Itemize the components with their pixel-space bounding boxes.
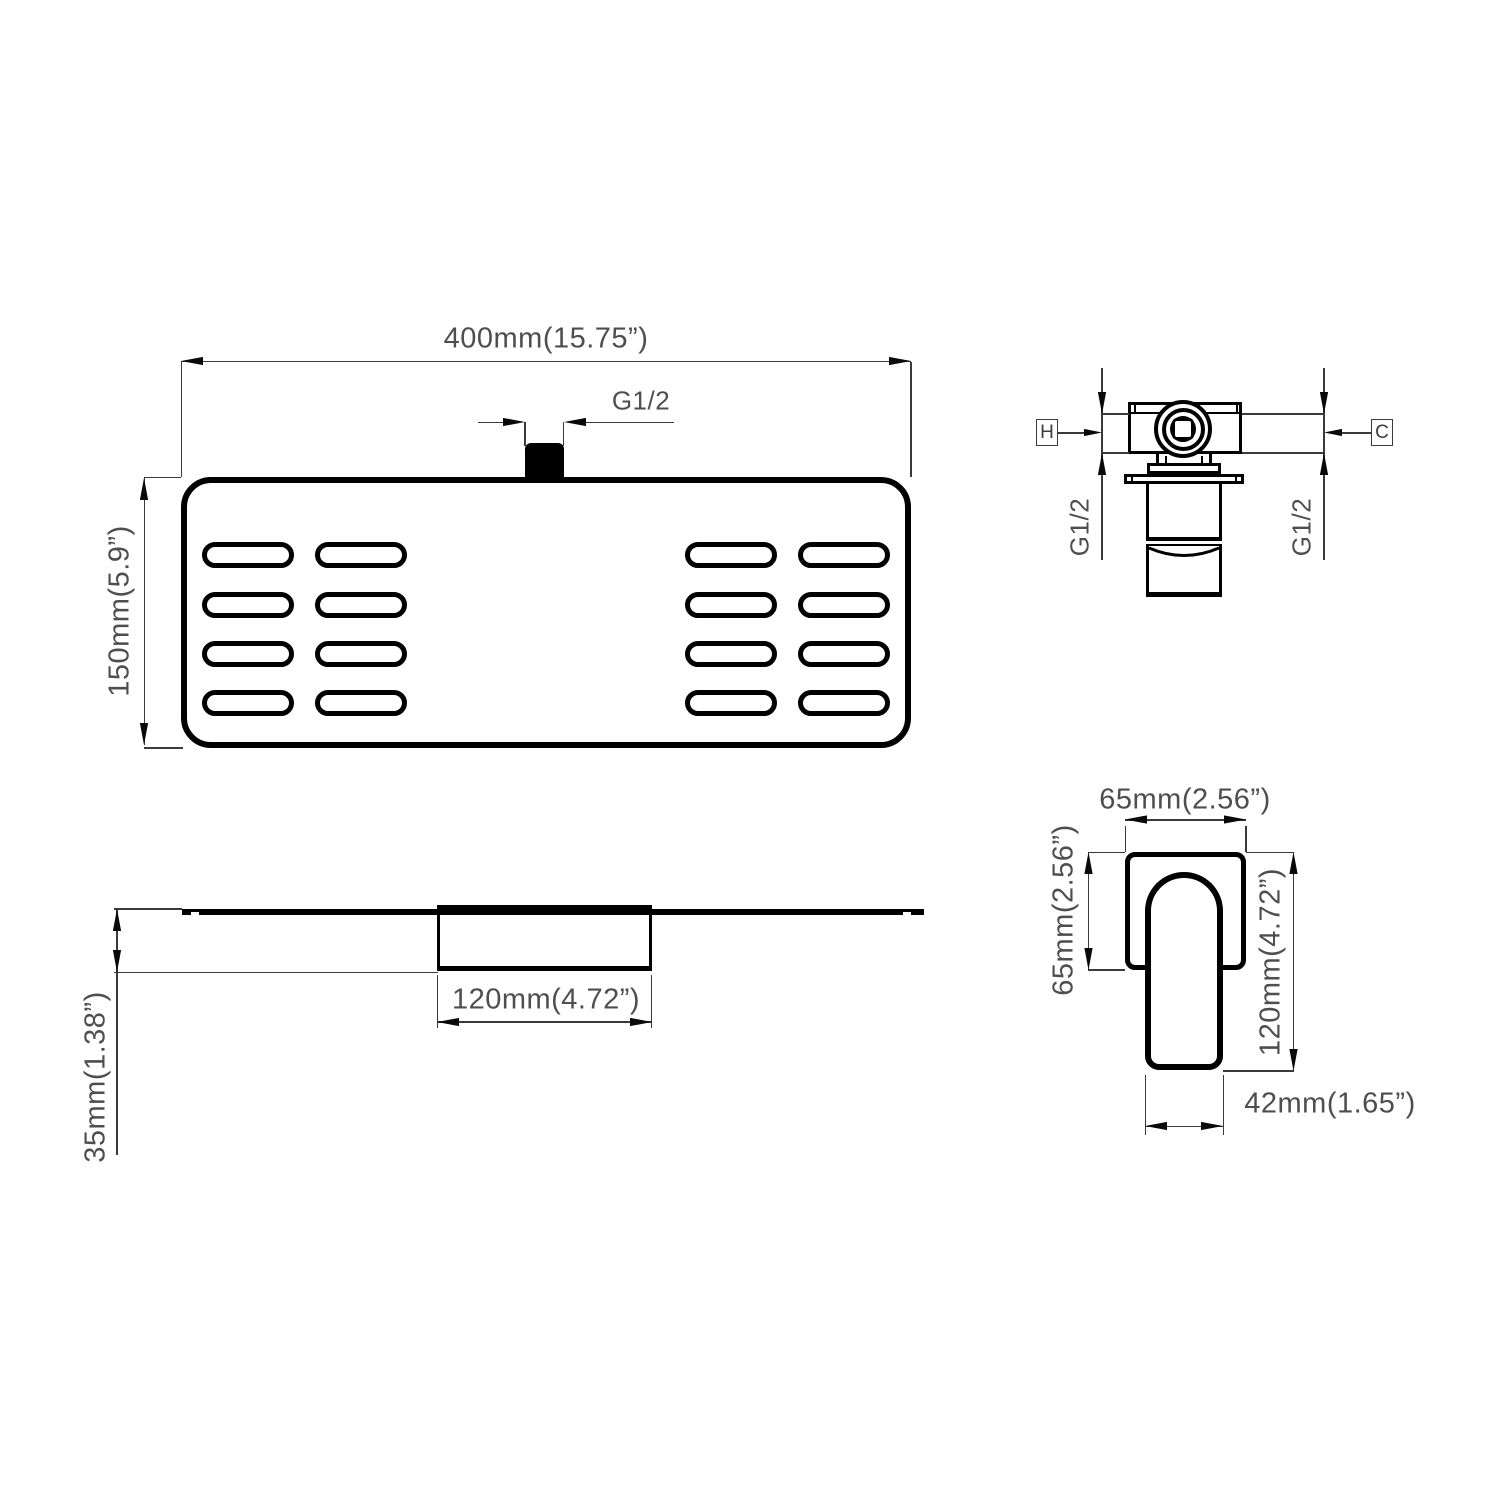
vent-slot: [685, 592, 777, 618]
dimension-line: [437, 1021, 652, 1023]
dimension-line: [478, 422, 504, 424]
arrowhead-right-icon: [503, 418, 525, 427]
vent-slot: [202, 542, 294, 568]
valve-flange: [1124, 474, 1244, 484]
dimension-line: [1293, 852, 1295, 1071]
extension-line: [144, 747, 183, 749]
extension-line: [1125, 826, 1127, 852]
vent-slot: [798, 592, 890, 618]
arrowhead-left-icon: [1145, 1122, 1167, 1131]
hot-label-box: H: [1036, 419, 1058, 446]
arrowhead-left-icon: [437, 1018, 459, 1027]
extension-line: [1223, 1070, 1294, 1072]
valve-cylinder-side: [1219, 484, 1222, 540]
arrowhead-down-icon: [1084, 948, 1093, 970]
valve-thread-left-label: G1/2: [1065, 498, 1096, 556]
vent-slot: [315, 542, 407, 568]
extension-line: [114, 908, 182, 910]
extension-line: [114, 972, 438, 974]
hot-label: H: [1040, 422, 1054, 444]
arrowhead-down-icon: [1320, 392, 1329, 414]
valve-body-tick: [1134, 402, 1136, 413]
arrowhead-right-icon: [889, 357, 911, 366]
dimension-line: [116, 909, 118, 1155]
extension-line: [1245, 826, 1247, 852]
extension-line: [144, 477, 181, 479]
arrowhead-down-icon: [1289, 1049, 1298, 1071]
valve-body-tick: [1236, 402, 1238, 413]
dimension-line: [144, 478, 146, 745]
valve-thread-right-label: G1/2: [1287, 498, 1318, 556]
arrowhead-up-icon: [140, 478, 149, 500]
arrowhead-up-icon: [1084, 852, 1093, 874]
vent-slot: [202, 690, 294, 716]
inlet-connector: [525, 443, 564, 478]
arrowhead-down-icon: [113, 950, 122, 972]
port-level-line: [1242, 452, 1324, 454]
mixer-handle: [1145, 872, 1223, 1070]
arrowhead-left-icon: [564, 418, 586, 427]
vent-slot: [685, 641, 777, 667]
valve-flange-tick: [1131, 476, 1133, 482]
bracket-side: [649, 915, 652, 968]
arrowhead-down-icon: [140, 723, 149, 745]
cartridge-square-stem: [1172, 418, 1194, 440]
arrowhead-left-icon: [1324, 429, 1342, 437]
port-level-line: [1102, 452, 1129, 454]
total-height-dimension-label: 120mm(4.72”): [1255, 868, 1288, 1056]
extension-line: [181, 362, 183, 477]
arrowhead-right-icon: [1201, 1122, 1223, 1131]
arrowhead-up-icon: [1098, 453, 1107, 475]
extension-line: [524, 422, 526, 446]
dimension-line: [586, 422, 674, 424]
bracket-width-dimension-label: 120mm(4.72”): [452, 984, 640, 1017]
arrowhead-left-icon: [181, 357, 203, 366]
port-level-line: [1242, 413, 1324, 415]
handle-width-dimension-label: 42mm(1.65”): [1244, 1088, 1416, 1121]
valve-concave-arc: [1146, 545, 1222, 567]
valve-flange-tick: [1235, 476, 1237, 482]
overall-height-dimension-label: 150mm(5.9”): [104, 525, 137, 697]
vent-slot: [798, 690, 890, 716]
arrowhead-right-icon: [1084, 429, 1102, 437]
vent-slot: [315, 641, 407, 667]
vent-slot: [202, 641, 294, 667]
arrowhead-up-icon: [113, 909, 122, 931]
plate-end-notch: [191, 912, 199, 915]
valve-cylinder-bottom: [1146, 537, 1222, 541]
plate-width-dimension-label: 65mm(2.56”): [1099, 784, 1271, 817]
overall-width-dimension-label: 400mm(15.75”): [444, 323, 649, 356]
vent-slot: [315, 690, 407, 716]
vent-slot: [685, 690, 777, 716]
valve-lower-bottom: [1146, 592, 1222, 597]
valve-collar: [1147, 463, 1221, 474]
extension-line: [1246, 852, 1294, 854]
vent-slot: [315, 592, 407, 618]
extension-line: [1088, 969, 1125, 971]
valve-lower-side: [1146, 546, 1149, 597]
vent-slot: [798, 641, 890, 667]
valve-cylinder-side: [1146, 484, 1149, 540]
plate-height-dimension-label: 65mm(2.56”): [1048, 824, 1081, 996]
extension-line: [563, 422, 565, 446]
cold-label-box: C: [1371, 419, 1393, 446]
cold-label: C: [1375, 422, 1389, 444]
bracket-bottom: [437, 966, 652, 971]
bracket-top-bar: [437, 905, 652, 915]
technical-drawing-canvas: 400mm(15.75”) G1/2: [0, 0, 1500, 1500]
bracket-side: [437, 915, 440, 968]
arrowhead-right-icon: [630, 1018, 652, 1027]
plate-end-notch: [903, 912, 911, 915]
dimension-line: [181, 361, 911, 363]
vent-slot: [202, 592, 294, 618]
valve-lower-side: [1219, 546, 1222, 597]
vent-slot: [685, 542, 777, 568]
vent-slot: [798, 542, 890, 568]
inlet-thread-label: G1/2: [612, 386, 670, 417]
arrowhead-up-icon: [1289, 852, 1298, 874]
extension-line: [910, 362, 912, 477]
arrowhead-down-icon: [1098, 392, 1107, 414]
extension-line: [1088, 852, 1125, 854]
thickness-dimension-label: 35mm(1.38”): [80, 991, 113, 1163]
arrowhead-up-icon: [1320, 453, 1329, 475]
port-level-line: [1102, 413, 1129, 415]
